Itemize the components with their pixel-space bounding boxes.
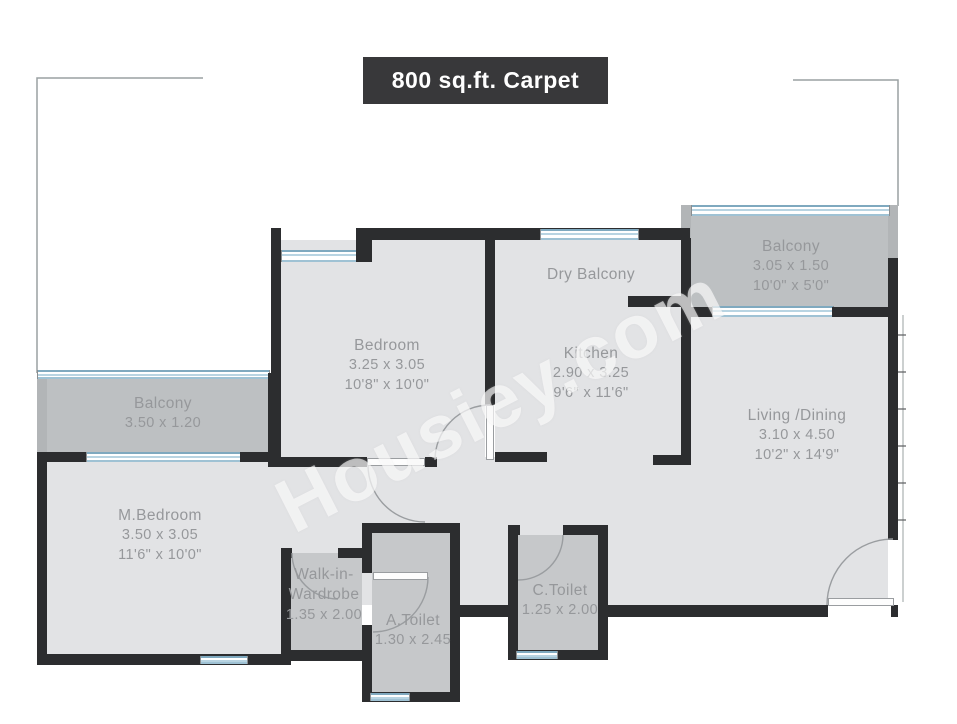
entry-door-leaf bbox=[828, 598, 894, 606]
room-label-kitchen: Kitchen 2.90 x 3.25 9'6" x 11'6" bbox=[553, 344, 629, 403]
floor-plan-canvas: Bedroom 3.25 x 3.05 10'8" x 10'0" Dry Ba… bbox=[0, 0, 957, 724]
room-label-living-dining: Living /Dining 3.10 x 4.50 10'2" x 14'9" bbox=[748, 406, 847, 465]
plan-title: 800 sq.ft. Carpet bbox=[363, 57, 608, 104]
room-label-dry-balcony: Dry Balcony bbox=[547, 265, 635, 285]
door-leaf bbox=[373, 572, 428, 580]
room-label-master-bedroom: M.Bedroom 3.50 x 3.05 11'6" x 10'0" bbox=[118, 506, 202, 565]
room-label-wardrobe: Walk-in- Wardrobe 1.35 x 2.00 bbox=[286, 565, 362, 625]
door-leaf bbox=[486, 405, 494, 460]
room-label-bedroom: Bedroom 3.25 x 3.05 10'8" x 10'0" bbox=[345, 336, 430, 395]
door-arcs-layer bbox=[0, 0, 957, 724]
room-label-balcony-right: Balcony 3.05 x 1.50 10'0" x 5'0" bbox=[753, 237, 829, 296]
room-label-c-toilet: C.Toilet 1.25 x 2.00 bbox=[522, 581, 598, 621]
room-label-balcony-left: Balcony 3.50 x 1.20 bbox=[125, 394, 201, 434]
room-label-a-toilet: A.Toilet 1.30 x 2.45 bbox=[375, 611, 451, 651]
door-leaf bbox=[367, 458, 425, 466]
